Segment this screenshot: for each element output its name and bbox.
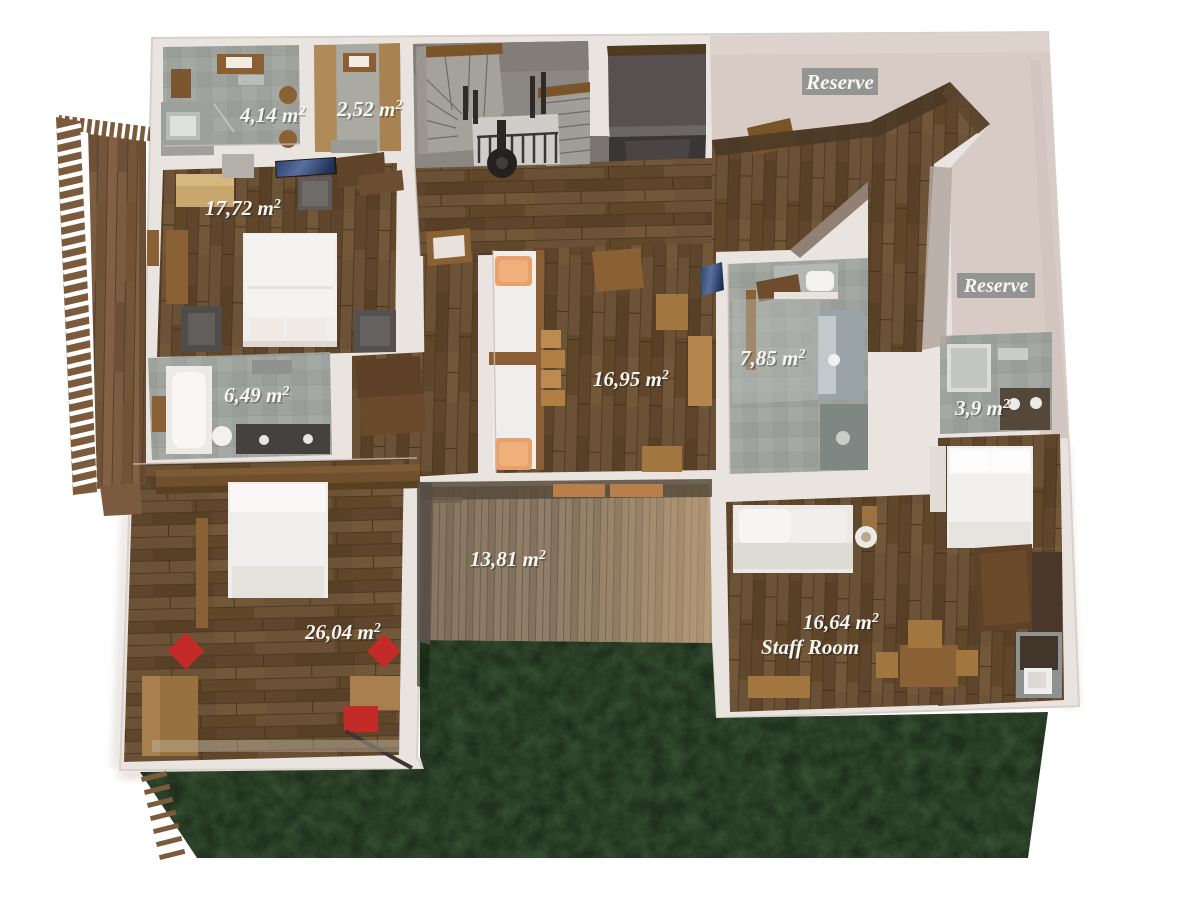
svg-text:4,14 m2: 4,14 m2 — [239, 103, 305, 127]
svg-text:26,04 m2: 26,04 m2 — [304, 620, 381, 644]
svg-text:7,85 m2: 7,85 m2 — [740, 346, 805, 370]
svg-text:16,95 m2: 16,95 m2 — [593, 367, 669, 391]
svg-text:2,52 m2: 2,52 m2 — [336, 97, 402, 121]
svg-text:16,64 m2: 16,64 m2 — [803, 610, 879, 634]
svg-text:3,9 m2: 3,9 m2 — [954, 396, 1010, 420]
svg-text:6,49 m2: 6,49 m2 — [224, 383, 289, 407]
svg-text:Reserve: Reserve — [963, 275, 1029, 297]
svg-text:Staff Room: Staff Room — [761, 635, 859, 659]
svg-text:13,81 m2: 13,81 m2 — [470, 547, 546, 571]
svg-text:17,72 m2: 17,72 m2 — [205, 196, 281, 220]
svg-text:Reserve: Reserve — [805, 70, 874, 94]
